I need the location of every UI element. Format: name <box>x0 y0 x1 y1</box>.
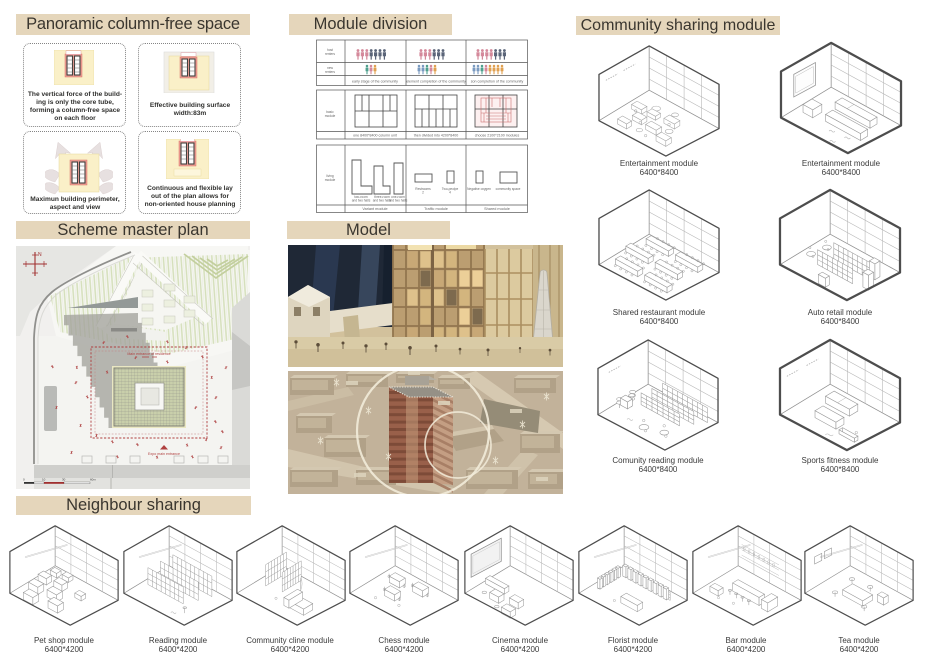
svg-text:N: N <box>38 252 42 258</box>
svg-text:renters: renters <box>325 70 335 74</box>
svg-text:son completion of the communit: son completion of the community <box>471 80 524 84</box>
svg-text:Expo main entrance: Expo main entrance <box>148 452 180 456</box>
svg-text:element completion of the comm: element completion of the community <box>406 80 466 84</box>
svg-text:30: 30 <box>62 478 66 482</box>
svg-text:60m: 60m <box>90 478 96 482</box>
svg-text:early stage of the community: early stage of the community <box>352 80 398 84</box>
svg-text:Negative oxygen: Negative oxygen <box>467 187 491 191</box>
svg-text:community space: community space <box>496 187 521 191</box>
svg-text:and two halls: and two halls <box>352 199 371 203</box>
svg-text:Traffic module: Traffic module <box>424 207 448 211</box>
svg-text:2: 2 <box>422 191 424 195</box>
svg-text:module: module <box>325 114 336 118</box>
svg-text:one 8400*8400 column unit: one 8400*8400 column unit <box>353 134 397 138</box>
svg-text:Main entrance of residence: Main entrance of residence <box>127 352 170 356</box>
svg-text:module: module <box>325 178 336 182</box>
svg-text:Shared module: Shared module <box>484 207 510 211</box>
svg-text:renters: renters <box>325 52 335 56</box>
svg-text:10: 10 <box>42 478 46 482</box>
svg-text:4: 4 <box>449 191 451 195</box>
svg-text:then divided into 4200*8400: then divided into 4200*8400 <box>414 134 459 138</box>
svg-text:Variant module: Variant module <box>362 207 387 211</box>
svg-text:choose 2100*2100 modules: choose 2100*2100 modules <box>475 134 520 138</box>
svg-text:and two halls: and two halls <box>389 199 408 203</box>
